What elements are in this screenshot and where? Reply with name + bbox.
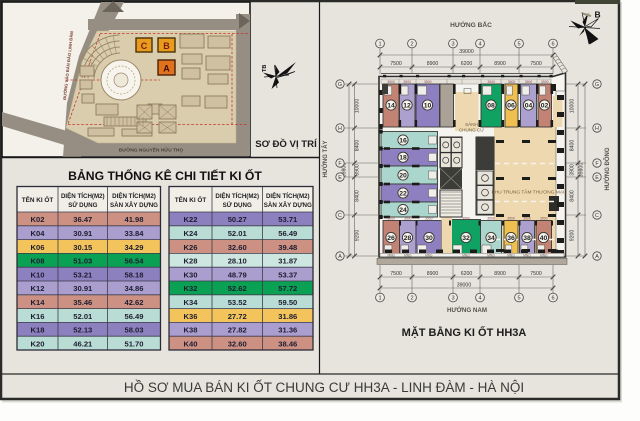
svg-text:52.62: 52.62 [228,284,247,293]
svg-text:3500: 3500 [404,217,412,221]
svg-text:3: 3 [451,296,454,302]
svg-text:56.49: 56.49 [278,229,297,238]
svg-text:K26: K26 [184,243,198,252]
svg-text:K10: K10 [31,270,45,279]
svg-text:G: G [338,82,342,88]
svg-text:A: A [163,64,170,74]
svg-text:K38: K38 [184,326,198,335]
svg-text:3500: 3500 [508,80,516,84]
svg-text:53.21: 53.21 [73,270,93,279]
svg-text:MNG: MNG [507,253,515,257]
svg-text:BẢNG THỐNG KÊ CHI TIẾT KI ỐT: BẢNG THỐNG KÊ CHI TIẾT KI ỐT [68,168,262,183]
svg-text:40: 40 [540,235,548,242]
svg-text:56.54: 56.54 [124,257,144,266]
svg-text:MNG: MNG [523,253,531,257]
svg-text:3500: 3500 [425,217,433,221]
svg-text:34: 34 [487,235,495,242]
svg-text:K08: K08 [31,257,45,266]
svg-text:DIỆN TÍCH(M2): DIỆN TÍCH(M2) [215,192,259,200]
svg-text:B: B [595,10,601,20]
svg-text:3500: 3500 [387,80,395,84]
svg-text:B: B [163,41,170,51]
svg-text:MẶT BẰNG KI ỐT HH3A: MẶT BẰNG KI ỐT HH3A [402,325,527,339]
svg-text:58.18: 58.18 [124,270,143,279]
svg-text:MNG: MNG [462,253,470,257]
svg-text:46.21: 46.21 [73,339,93,348]
svg-text:30.91: 30.91 [73,284,93,293]
svg-text:53.71: 53.71 [278,215,298,224]
svg-text:6200: 6200 [461,271,473,277]
svg-text:SỬ DỤNG: SỬ DỤNG [68,202,97,209]
svg-text:9200: 9200 [355,230,361,242]
svg-text:34.29: 34.29 [124,243,143,252]
svg-text:06: 06 [507,102,515,109]
svg-text:8900: 8900 [427,61,439,67]
svg-text:28.10: 28.10 [228,257,247,266]
svg-text:1: 1 [378,42,381,48]
svg-text:27.82: 27.82 [228,326,247,335]
svg-text:K18: K18 [31,326,45,335]
svg-text:48.79: 48.79 [228,270,247,279]
svg-text:10000: 10000 [355,99,361,114]
svg-text:K14: K14 [31,298,46,307]
svg-text:39000: 39000 [457,283,472,289]
svg-text:MNG: MNG [387,253,395,257]
svg-text:31.86: 31.86 [278,312,297,321]
svg-text:3: 3 [451,42,454,48]
svg-text:C: C [595,213,599,219]
svg-text:3500: 3500 [507,217,515,221]
svg-text:SỬ DỤNG: SỬ DỤNG [223,202,252,209]
svg-text:3900: 3900 [570,164,576,176]
svg-text:8400: 8400 [570,190,576,202]
svg-text:7500: 7500 [530,61,542,67]
svg-text:K28: K28 [184,257,198,266]
svg-text:30: 30 [425,235,433,242]
svg-text:59.50: 59.50 [278,298,297,307]
svg-text:20: 20 [399,172,407,179]
svg-text:K30: K30 [184,270,198,279]
svg-text:CHUNG CƯ: CHUNG CƯ [459,128,484,133]
svg-text:K24: K24 [184,229,199,238]
svg-text:32: 32 [462,235,470,242]
svg-text:51.70: 51.70 [124,339,143,348]
svg-text:3500: 3500 [541,80,549,84]
svg-text:DIỆN TÍCH(M2): DIỆN TÍCH(M2) [266,192,310,200]
svg-text:3500: 3500 [424,80,432,84]
svg-text:2: 2 [410,296,413,302]
svg-text:C: C [141,41,148,51]
svg-text:31.87: 31.87 [278,257,297,266]
svg-text:04: 04 [525,102,533,109]
svg-text:8900: 8900 [427,271,439,277]
svg-text:K32: K32 [184,284,198,293]
svg-text:K34: K34 [184,298,199,307]
svg-text:8900: 8900 [494,271,506,277]
svg-text:6: 6 [551,296,554,302]
svg-text:41.98: 41.98 [124,215,143,224]
svg-text:08: 08 [487,102,495,109]
svg-text:3500: 3500 [487,80,495,84]
svg-text:K04: K04 [31,229,46,238]
svg-text:MNG: MNG [425,253,433,257]
svg-text:52.13: 52.13 [73,326,92,335]
svg-text:36.47: 36.47 [73,215,92,224]
svg-text:K06: K06 [31,243,45,252]
svg-text:HƯỚNG NAM: HƯỚNG NAM [447,306,487,314]
svg-text:K36: K36 [184,312,198,321]
svg-text:27.72: 27.72 [228,312,247,321]
svg-text:28: 28 [404,235,412,242]
svg-text:MNG: MNG [487,253,495,257]
svg-text:6200: 6200 [461,61,473,67]
svg-text:52.01: 52.01 [73,312,93,321]
svg-text:53.37: 53.37 [278,270,297,279]
svg-text:3500: 3500 [403,80,411,84]
svg-text:14: 14 [387,102,395,109]
svg-text:SẢNH: SẢNH [465,121,478,127]
svg-text:58.03: 58.03 [124,326,143,335]
svg-text:8400: 8400 [355,190,361,202]
svg-text:10: 10 [424,102,432,109]
svg-text:KHU TRUNG TÂM THƯƠNG MẠI: KHU TRUNG TÂM THƯƠNG MẠI [492,189,565,196]
svg-text:38: 38 [523,235,531,242]
svg-text:10000: 10000 [570,99,576,114]
svg-text:3900: 3900 [355,164,361,176]
svg-text:26: 26 [387,235,395,242]
svg-text:35.46: 35.46 [73,298,92,307]
svg-text:7500: 7500 [530,271,542,277]
svg-text:52.01: 52.01 [228,229,248,238]
svg-text:30.91: 30.91 [73,229,93,238]
svg-text:5: 5 [517,296,520,302]
svg-text:7500: 7500 [390,271,402,277]
svg-text:33.84: 33.84 [124,229,144,238]
svg-text:K12: K12 [31,284,45,293]
svg-text:E: E [595,175,599,181]
svg-text:MNG: MNG [540,253,548,257]
svg-text:3500: 3500 [540,217,548,221]
svg-text:53.52: 53.52 [228,298,247,307]
svg-text:4: 4 [478,42,481,48]
svg-text:4: 4 [478,296,481,302]
svg-text:H: H [595,126,599,132]
svg-text:HƯỚNG ĐÔNG: HƯỚNG ĐÔNG [603,147,611,190]
svg-text:1: 1 [378,296,381,302]
svg-text:3500: 3500 [523,217,531,221]
svg-text:K20: K20 [31,339,45,348]
svg-text:36: 36 [507,235,515,242]
svg-text:3500: 3500 [387,217,395,221]
svg-text:9200: 9200 [570,230,576,242]
svg-text:24: 24 [399,207,407,214]
svg-text:HƯỚNG BẮC: HƯỚNG BẮC [450,20,492,29]
svg-text:02: 02 [541,102,549,109]
svg-text:8400: 8400 [570,140,576,152]
svg-text:MNG: MNG [404,253,412,257]
svg-text:57.72: 57.72 [278,284,297,293]
svg-text:K22: K22 [184,215,198,224]
svg-text:C: C [338,213,342,219]
svg-text:32.60: 32.60 [228,243,247,252]
svg-text:K16: K16 [31,312,45,321]
svg-text:E: E [338,175,342,181]
svg-text:SÀN XÂY DỰNG: SÀN XÂY DỰNG [264,202,312,209]
svg-text:34.86: 34.86 [124,284,143,293]
svg-text:A: A [338,254,342,260]
svg-text:8400: 8400 [355,140,361,152]
svg-text:3500: 3500 [487,217,495,221]
svg-text:39000: 39000 [459,49,474,55]
svg-text:3500: 3500 [462,217,470,221]
svg-text:2: 2 [410,42,413,48]
svg-text:56.49: 56.49 [124,312,143,321]
svg-text:39.48: 39.48 [278,243,297,252]
svg-text:50.27: 50.27 [228,215,247,224]
svg-text:HỒ SƠ MUA BÁN KI ỐT CHUNG CƯ H: HỒ SƠ MUA BÁN KI ỐT CHUNG CƯ HH3A - LINH… [124,380,524,395]
svg-text:K02: K02 [31,215,45,224]
svg-text:5: 5 [517,42,520,48]
svg-text:HƯỚNG TÂY: HƯỚNG TÂY [321,140,329,177]
svg-text:SÀN XÂY DỰNG: SÀN XÂY DỰNG [110,202,158,209]
svg-text:18: 18 [399,155,407,162]
svg-text:A: A [595,254,599,260]
svg-text:6: 6 [551,42,554,48]
svg-text:DIỆN TÍCH(M2): DIỆN TÍCH(M2) [61,192,105,200]
svg-text:32.60: 32.60 [228,339,247,348]
svg-text:16: 16 [399,137,407,144]
svg-text:42.62: 42.62 [124,298,143,307]
svg-text:3500: 3500 [525,80,533,84]
svg-text:12: 12 [403,102,411,109]
svg-text:TB: TB [262,65,268,72]
svg-text:31.36: 31.36 [278,326,297,335]
svg-text:22: 22 [399,190,407,197]
svg-text:H: H [338,126,342,132]
svg-text:G: G [595,82,599,88]
svg-text:7500: 7500 [390,61,402,67]
svg-text:8900: 8900 [494,61,506,67]
svg-text:51.03: 51.03 [73,257,92,266]
svg-text:38.46: 38.46 [278,339,297,348]
svg-text:SƠ ĐỒ VỊ TRÍ: SƠ ĐỒ VỊ TRÍ [255,138,317,150]
svg-text:30.15: 30.15 [73,243,93,252]
svg-text:DIỆN TÍCH(M2): DIỆN TÍCH(M2) [112,192,156,200]
svg-text:K40: K40 [184,339,198,348]
